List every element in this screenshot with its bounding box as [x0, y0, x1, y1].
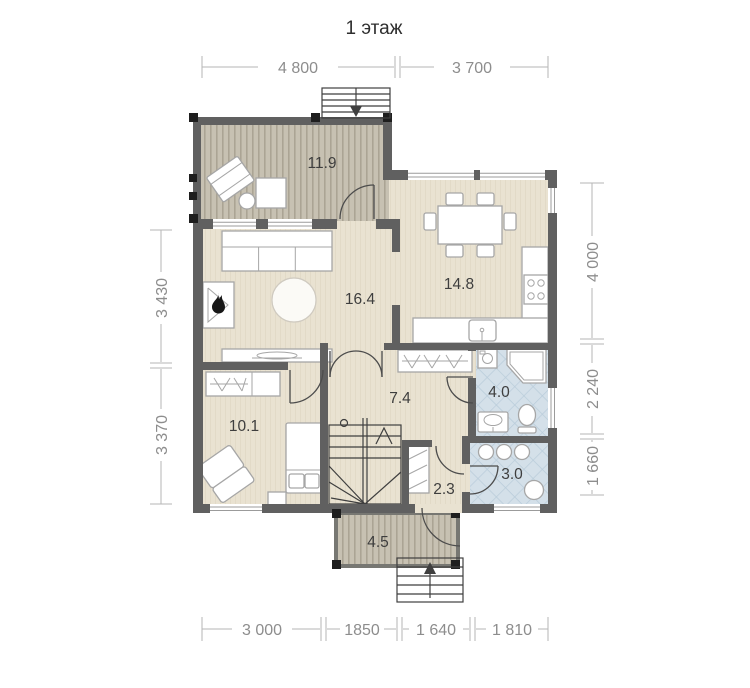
window-shower [494, 504, 540, 513]
dim-right-2: 2 240 [585, 369, 602, 409]
basin-3 [515, 445, 530, 460]
tv-console [222, 349, 332, 362]
window-bedroom [210, 504, 262, 513]
window-terrace-1 [213, 219, 256, 229]
dim-top-1: 4 800 [278, 60, 318, 77]
toilet [518, 405, 536, 434]
hall-area-label: 7.4 [389, 390, 411, 407]
window-right-kitchen [548, 188, 557, 213]
dim-bottom-2: 1850 [344, 622, 380, 639]
round-tub [525, 481, 544, 500]
room-bathroom: 4.0 [476, 349, 548, 436]
dim-top-2: 3 700 [452, 60, 492, 77]
room-shower: 3.0 [470, 443, 548, 504]
round-rug [272, 278, 316, 322]
window-terrace-2 [268, 219, 312, 229]
bathroom-sink [478, 412, 508, 432]
dim-bottom-4: 1 810 [492, 622, 532, 639]
bedroom-wardrobe [206, 372, 280, 396]
dimension-right: 4 000 2 240 1 660 [580, 183, 604, 495]
hall-wardrobe [398, 350, 472, 372]
bed [286, 423, 322, 493]
basin-1 [479, 445, 494, 460]
bathroom-area-label: 4.0 [488, 384, 510, 401]
dim-bottom-1: 3 000 [242, 622, 282, 639]
sofa [222, 231, 332, 271]
dimension-top: 4 800 3 700 [202, 56, 548, 78]
page-title: 1 этаж [346, 18, 403, 39]
dim-bottom-3: 1 640 [416, 622, 456, 639]
basin-2 [497, 445, 512, 460]
terrace-table [256, 178, 286, 208]
porch-area-label: 4.5 [367, 534, 389, 551]
dimension-left: 3 430 3 370 [150, 230, 172, 504]
dim-right-3: 1 660 [585, 446, 602, 486]
bedroom-area-label: 10.1 [229, 418, 259, 435]
storage-area-label: 2.3 [433, 481, 455, 498]
living-area-label: 16.4 [345, 291, 376, 308]
dim-left-2: 3 370 [154, 415, 171, 455]
floor-plan: 1 этаж 11.9 4.5 [0, 0, 750, 688]
fireplace [203, 282, 234, 328]
shower-area-label: 3.0 [501, 466, 523, 483]
dim-left-1: 3 430 [154, 278, 171, 318]
terrace-area-label: 11.9 [307, 155, 336, 172]
dining-table [438, 206, 502, 244]
floor-plan-page: 1 этаж 11.9 4.5 [0, 0, 750, 688]
window-kitchen-1 [408, 170, 474, 180]
dimension-bottom: 3 000 1850 1 640 1 810 [202, 617, 548, 641]
entry-stairs-terrace [322, 88, 390, 118]
kitchen-sink [469, 320, 496, 341]
dim-right-1: 4 000 [585, 242, 602, 282]
kitchen-area-label: 14.8 [444, 276, 474, 293]
washing-machine [478, 349, 497, 368]
room-terrace: 11.9 [199, 123, 389, 221]
window-right-bathroom [548, 388, 557, 428]
terrace-side-table [239, 193, 255, 209]
window-kitchen-2 [480, 170, 545, 180]
stove [524, 275, 548, 304]
